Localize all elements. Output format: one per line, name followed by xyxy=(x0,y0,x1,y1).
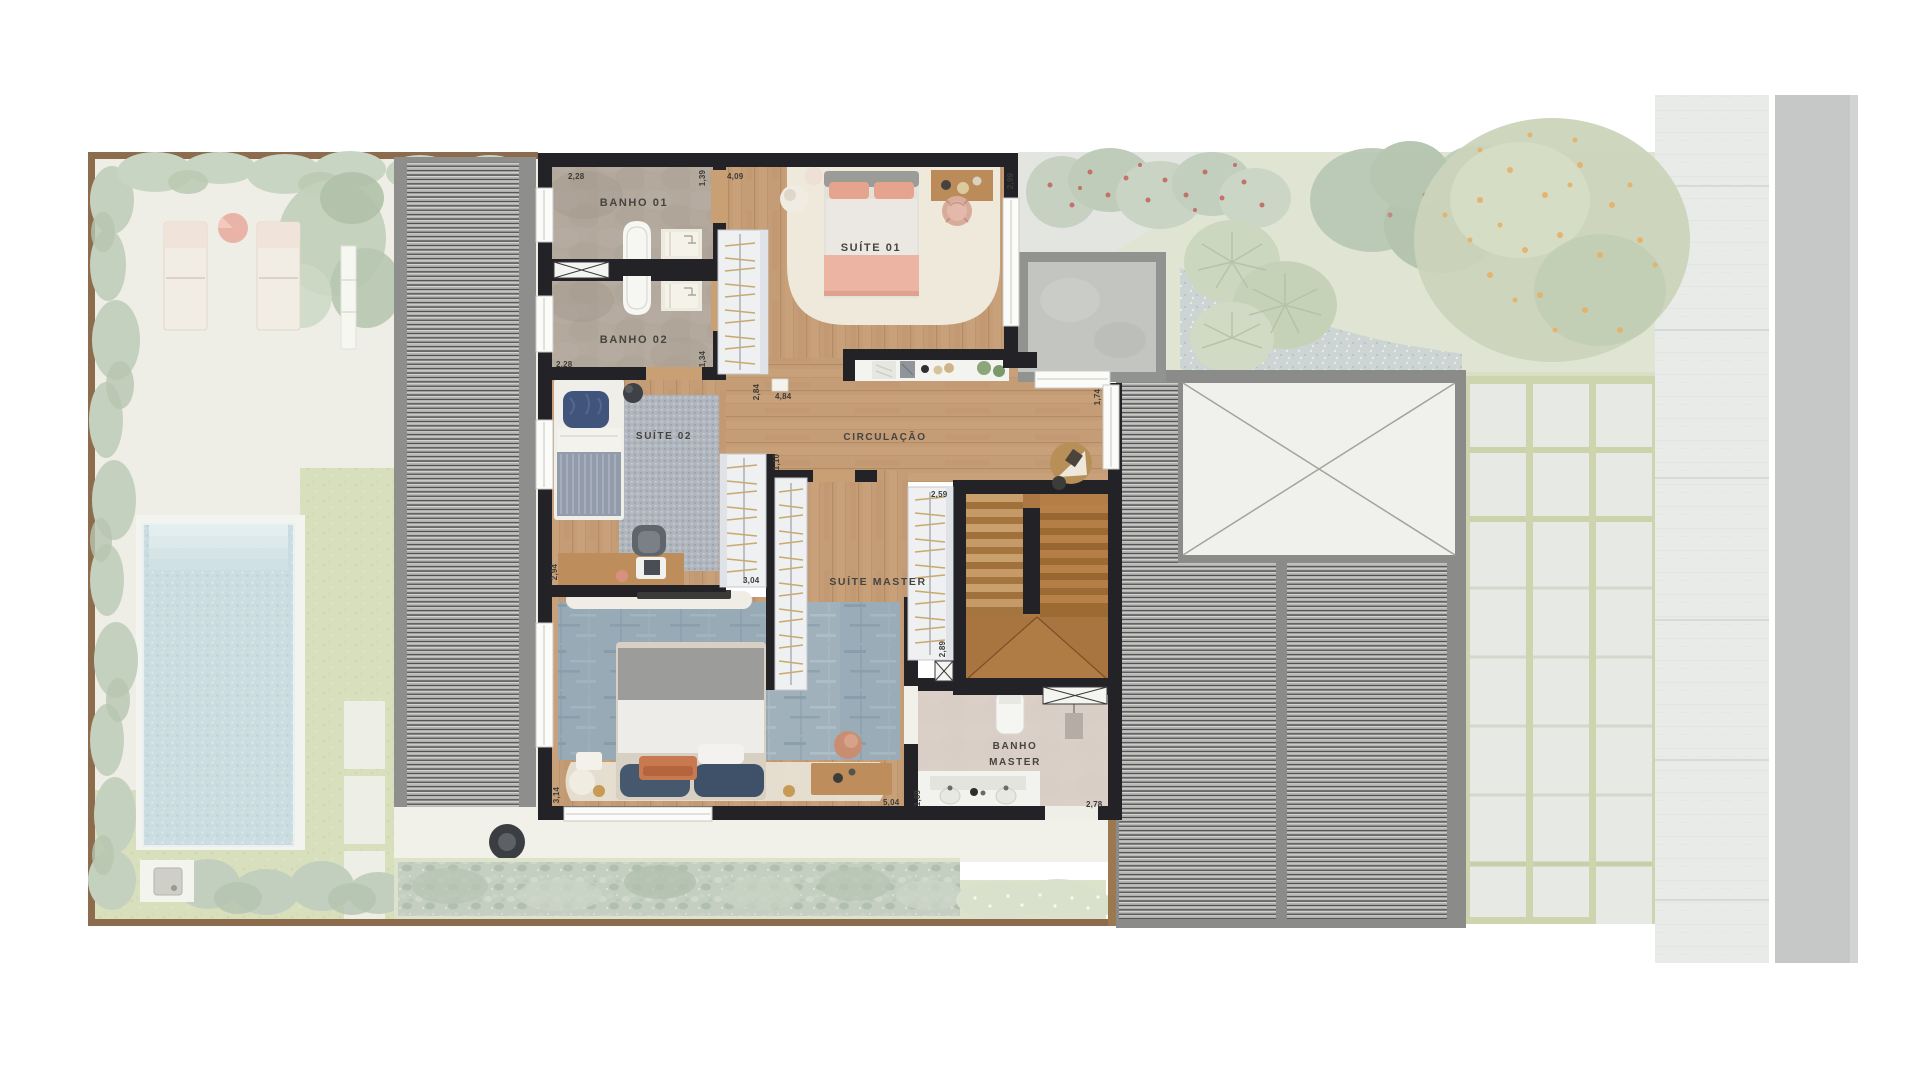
svg-text:4,09: 4,09 xyxy=(727,172,744,181)
svg-text:3,04: 3,04 xyxy=(743,576,760,585)
svg-text:CIRCULAÇÃO: CIRCULAÇÃO xyxy=(843,430,926,443)
svg-text:1,74: 1,74 xyxy=(1093,388,1102,405)
svg-text:SUÍTE 01: SUÍTE 01 xyxy=(841,241,902,254)
svg-text:2,78: 2,78 xyxy=(1086,800,1103,809)
svg-text:1,34: 1,34 xyxy=(698,350,707,367)
svg-text:2,84: 2,84 xyxy=(752,383,761,400)
svg-text:2,94: 2,94 xyxy=(550,563,559,580)
svg-text:SUÍTE 02: SUÍTE 02 xyxy=(636,429,692,442)
svg-text:4,84: 4,84 xyxy=(775,392,792,401)
svg-text:3,14: 3,14 xyxy=(552,786,561,803)
svg-text:2,28: 2,28 xyxy=(556,360,573,369)
svg-text:5,04: 5,04 xyxy=(883,798,900,807)
svg-text:MASTER: MASTER xyxy=(989,757,1041,768)
svg-text:BANHO 01: BANHO 01 xyxy=(600,197,668,209)
svg-text:1,10: 1,10 xyxy=(772,453,781,470)
svg-text:1,69: 1,69 xyxy=(913,789,922,806)
svg-text:1,39: 1,39 xyxy=(698,169,707,186)
svg-text:BANHO 02: BANHO 02 xyxy=(600,334,668,346)
svg-text:2,28: 2,28 xyxy=(568,172,585,181)
svg-text:SUÍTE MASTER: SUÍTE MASTER xyxy=(829,575,926,588)
svg-text:BANHO: BANHO xyxy=(993,741,1038,752)
svg-text:2,59: 2,59 xyxy=(931,490,948,499)
svg-text:2,99: 2,99 xyxy=(1006,172,1015,189)
svg-text:2,89: 2,89 xyxy=(938,640,947,657)
